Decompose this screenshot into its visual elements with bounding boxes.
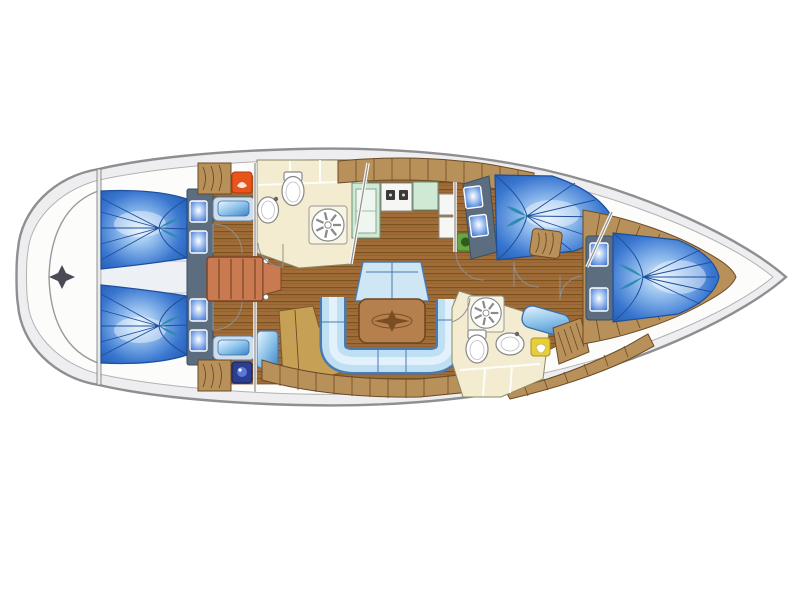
stove-icon [381,183,412,211]
yacht-floor-plan [0,0,800,599]
yellow-basin-fixture [531,338,550,356]
toilet-icon [466,330,488,363]
toilet-icon [282,172,304,206]
shower-drain-icon [471,298,501,328]
salon-bench [355,262,429,301]
orange-basin-fixture [232,172,252,193]
aft-bottom-louvered-locker [198,360,231,391]
aft-cabin-bottom-vanity-sink [213,336,255,360]
washbasin-icon [258,197,279,223]
salon-table [359,299,425,343]
corridor-louvered-seat [529,228,562,259]
aft-top-louvered-locker [198,163,231,194]
navy-basin-fixture [232,362,252,383]
aft-cabin-top-vanity-sink [213,197,255,221]
shower-drain-icon [312,209,344,241]
aft-cabin-bottom-berth [101,285,187,363]
aft-cabin-top-berth [101,191,187,269]
